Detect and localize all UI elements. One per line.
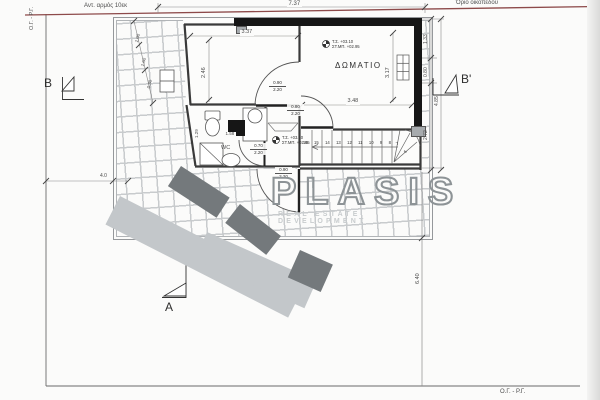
stair-step-number: 11 (358, 140, 362, 145)
room-door-size: 0.90 2.20 (269, 80, 286, 92)
toilet-bowl (206, 118, 220, 136)
stair-step-number: 14 (325, 140, 330, 145)
stair-step-number: 10 (369, 140, 374, 145)
bidet (222, 154, 240, 167)
building-line-label-bottom: Ο.Γ. - Ρ.Γ. (500, 389, 525, 395)
stair-step-numbers: 1615141312111098 (303, 140, 391, 145)
dim-right-seg2: 0.80 (424, 67, 429, 77)
section-letter-b: B (44, 76, 52, 90)
room-level-line2: ΣΤ.ΜΠ. +02.95 (332, 44, 360, 49)
stair-step-number: 8 (389, 140, 391, 145)
section-letter-a: A (165, 300, 173, 314)
dim-bedroom-depth: 3.17 (386, 67, 392, 78)
wc-label: WC (221, 146, 230, 152)
staircase (312, 130, 420, 164)
dim-bedroom-width: 3.48 (346, 99, 360, 105)
window-symbol (397, 55, 409, 80)
dim-top-total: 7.37 (287, 1, 302, 7)
dim-left-room-depth: 2.46 (202, 67, 208, 78)
dim-right-seg1: 1.33 (424, 34, 429, 44)
wc-door-size: 0.70 2.20 (250, 143, 267, 155)
stair-step-number: 16 (303, 140, 308, 145)
niche-lines (268, 123, 298, 131)
hall-door-height: 2.20 (287, 110, 304, 117)
dim-right-lower: 6.40 (416, 273, 422, 284)
bathroom-fixtures (200, 108, 267, 167)
dim-right-seg3: 2.72 (424, 130, 429, 140)
stair-step-number: 9 (380, 140, 382, 145)
watermark-tagline: REAL ESTATE DEVELOPMENT (278, 211, 366, 225)
hall-door-size: 0.80 2.20 (287, 104, 304, 116)
dim-bath-depth: 1.29 (195, 129, 200, 138)
room-level-marker: Τ.Σ. +03.10 ΣΤ.ΜΠ. +02.95 (332, 39, 360, 50)
wc-door-height: 2.20 (250, 149, 267, 156)
hall-door-arc (301, 96, 333, 128)
scan-edge-shadow (587, 0, 600, 400)
column-symbol (160, 70, 174, 92)
sink-basin (248, 109, 262, 123)
dim-right-total: 4.85 (435, 96, 440, 106)
east-wall (414, 18, 422, 128)
stair-step-number: 13 (336, 140, 341, 145)
building-line-label-left: Ο.Γ. - Ρ.Γ. (30, 7, 36, 30)
dim-bath-width: 1.58 (224, 132, 236, 137)
section-letter-b-prime: B' (461, 72, 471, 86)
stair-step-number: 12 (347, 140, 352, 145)
room-label: ΔΩΜΑΤΙΟ (335, 62, 382, 70)
watermark-wordmark: PLASIS (271, 171, 462, 214)
joint-label: Αντ. αρμός 10εκ (84, 3, 127, 9)
stair-step-number: 15 (314, 140, 319, 145)
plot-boundary-label: Όριο οικοπέδου (456, 0, 498, 6)
floor-plan-page: Αντ. αρμός 10εκ Όριο οικοπέδου Ο.Γ. - Ρ.… (0, 0, 600, 400)
room-door-height: 2.20 (269, 86, 286, 93)
dim-left-offset: 4.0 (100, 174, 107, 179)
north-wall (234, 18, 422, 26)
dim-left-room-width: 3.37 (240, 30, 254, 36)
